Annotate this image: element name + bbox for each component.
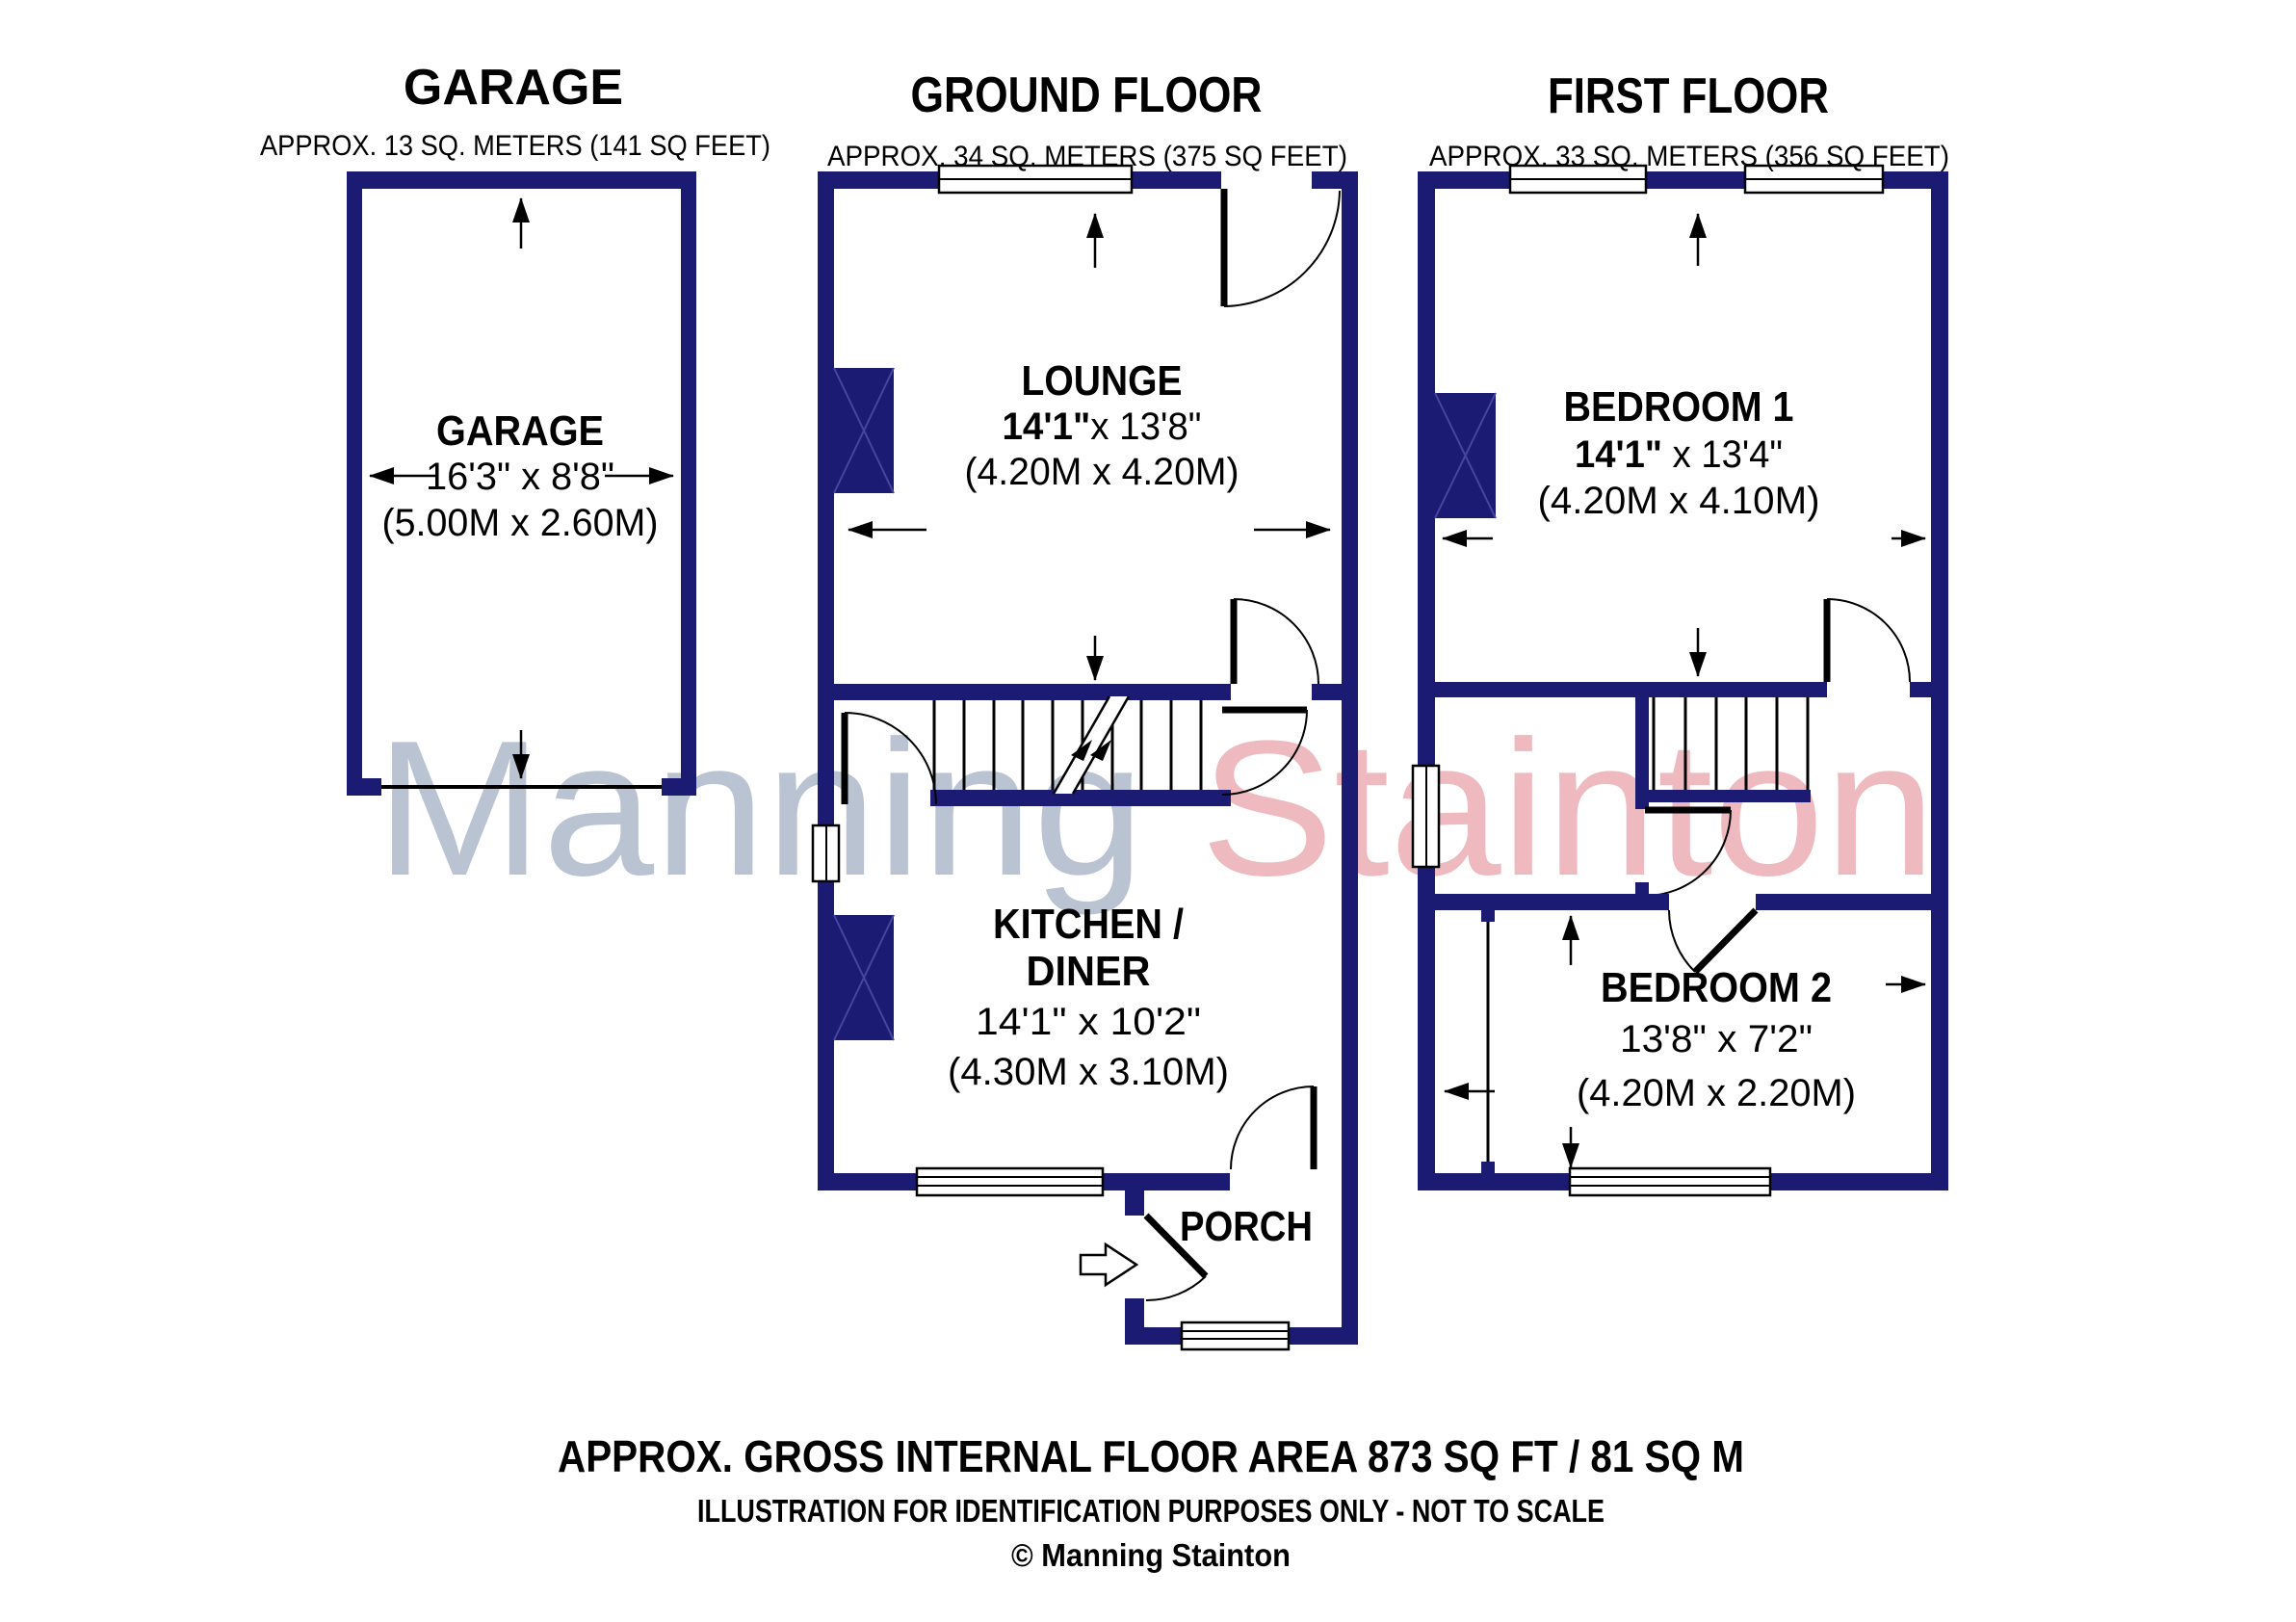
first-left-wall xyxy=(1418,867,1435,1190)
bedroom1-wall-stub xyxy=(1910,682,1931,697)
ground-top-wall xyxy=(818,171,939,189)
stairs-wall-foot xyxy=(1635,882,1649,894)
kitchen-label-2: DINER xyxy=(1027,948,1151,995)
porch-left-wall-upper xyxy=(1125,1190,1144,1216)
bedroom2-window xyxy=(1570,1168,1770,1195)
ground-floor-title: GROUND FLOOR xyxy=(911,67,1263,123)
first-floor-title: FIRST FLOOR xyxy=(1548,68,1829,124)
bedroom1-wall xyxy=(1435,682,1827,697)
first-left-wall xyxy=(1418,171,1435,766)
garage-left-wall xyxy=(347,171,362,796)
kitchen-dims-m: (4.30M x 3.10M) xyxy=(948,1051,1229,1093)
first-top-wall xyxy=(1646,171,1745,189)
garage-right-wall xyxy=(681,171,696,796)
bedroom1-dims-ft: 14'1" x 13'4" xyxy=(1575,433,1783,476)
first-bottom-wall xyxy=(1418,1173,1570,1190)
porch-bottom-wall xyxy=(1144,1327,1182,1345)
bedroom1-label: BEDROOM 1 xyxy=(1564,383,1794,431)
stairs-upper-wall xyxy=(834,684,1231,700)
ground-left-wall xyxy=(818,881,834,1190)
first-floor-subtitle: APPROX. 33 SQ. METERS (356 SQ FEET) xyxy=(1429,141,1949,172)
garage-bottom-right-stub xyxy=(662,778,696,796)
bedroom1-dims-ft-bold: 14'1" xyxy=(1575,433,1662,476)
ground-floor-subtitle: APPROX. 34 SQ. METERS (375 SQ FEET) xyxy=(827,141,1347,172)
kitchen-bottom-wall xyxy=(1103,1173,1230,1190)
lounge-label: LOUNGE xyxy=(1022,357,1183,405)
kitchen-bottom-wall xyxy=(818,1173,917,1190)
footer-area-text: APPROX. GROSS INTERNAL FLOOR AREA 873 SQ… xyxy=(558,1431,1744,1481)
porch-window xyxy=(1182,1322,1289,1349)
first-stairs-bottom-wall xyxy=(1649,790,1811,802)
bedroom2-label: BEDROOM 2 xyxy=(1601,964,1832,1011)
bedroom1-dims-ft-rest: x 13'4" xyxy=(1662,433,1783,476)
bedroom2-dims-m: (4.20M x 2.20M) xyxy=(1577,1072,1856,1114)
garage-dims-ft: 16'3" x 8'8" xyxy=(426,456,614,498)
bedroom2-wall xyxy=(1435,894,1669,910)
first-stairs-wall xyxy=(1635,697,1649,809)
lounge-dims-ft: 14'1"x 13'8" xyxy=(1003,405,1202,448)
lounge-dims-ft-bold: 14'1" xyxy=(1003,405,1091,448)
stairs-upper-wall-stub xyxy=(1312,684,1342,700)
lounge-dims-m: (4.20M x 4.20M) xyxy=(965,451,1239,493)
footer-disclaimer-text: ILLUSTRATION FOR IDENTIFICATION PURPOSES… xyxy=(697,1493,1605,1529)
bedroom1-dims-m: (4.20M x 4.10M) xyxy=(1538,480,1820,522)
kitchen-dims-ft: 14'1" x 10'2" xyxy=(976,1001,1201,1043)
garage-dims-m: (5.00M x 2.60M) xyxy=(382,502,659,544)
partition-stub xyxy=(1481,910,1495,922)
garage-subtitle: APPROX. 13 SQ. METERS (141 SQ FEET) xyxy=(260,130,770,162)
garage-title: GARAGE xyxy=(404,60,623,116)
first-right-wall xyxy=(1931,171,1948,1190)
porch-bottom-wall xyxy=(1289,1327,1358,1345)
bedroom2-dims-ft: 13'8" x 7'2" xyxy=(1620,1018,1813,1060)
garage-bottom-left-stub xyxy=(347,778,381,796)
ground-left-wall xyxy=(818,171,834,825)
partition-stub xyxy=(1481,1162,1495,1173)
footer-copyright-text: © Manning Stainton xyxy=(1011,1537,1291,1573)
stairs-lower-wall xyxy=(930,790,1231,806)
garage-top-wall xyxy=(347,171,696,189)
kitchen-label-1: KITCHEN / xyxy=(993,901,1184,948)
first-bottom-wall xyxy=(1770,1173,1948,1190)
floor-plan-drawing: Manning Stainton GARAGE 16'3" x 8'8" (5.… xyxy=(0,0,2296,1622)
ground-right-wall xyxy=(1342,171,1358,1345)
bedroom2-wall xyxy=(1756,894,1931,910)
porch-label: PORCH xyxy=(1180,1203,1313,1250)
watermark-word-1: Manning xyxy=(376,701,1200,916)
lounge-dims-ft-rest: x 13'8" xyxy=(1090,405,1201,448)
kitchen-window xyxy=(917,1168,1103,1195)
garage-room-label: GARAGE xyxy=(436,407,604,455)
ground-top-wall xyxy=(1132,171,1221,189)
porch-left-wall-lower xyxy=(1125,1298,1144,1345)
watermark-word-2: Stainton xyxy=(1200,701,1936,916)
floor-plan-page: Manning Stainton GARAGE 16'3" x 8'8" (5.… xyxy=(0,0,2296,1622)
